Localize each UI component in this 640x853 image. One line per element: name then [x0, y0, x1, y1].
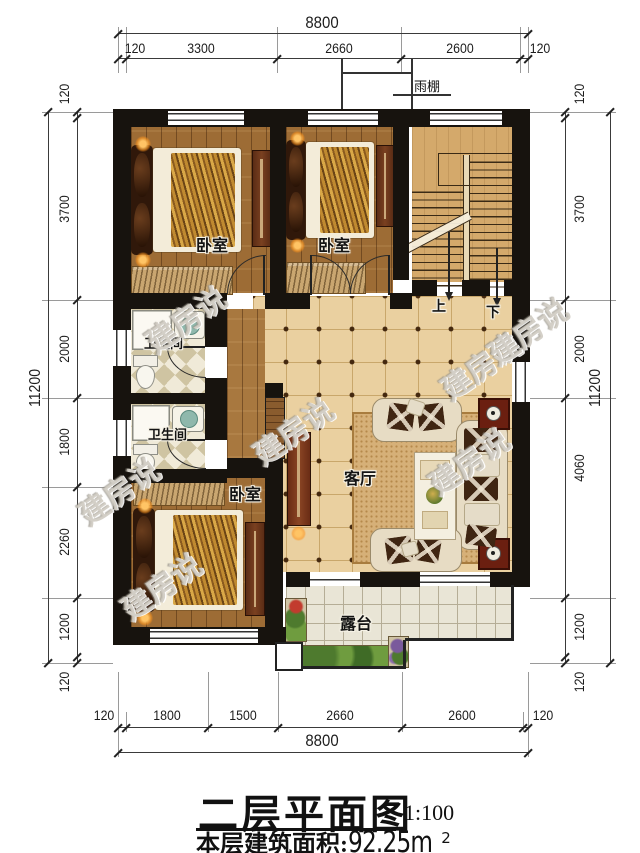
terrace-door-opening	[310, 573, 360, 586]
area-value: 92.25m	[348, 825, 432, 853]
living-label: 客厅	[344, 465, 376, 489]
bedroom1-door-leaf	[263, 255, 265, 295]
bath1-door-opening	[205, 347, 227, 378]
dim-left-seg: 2000	[57, 335, 71, 362]
living-cabinet	[287, 432, 311, 526]
dim-left-seg: 120	[57, 672, 71, 693]
sofa-cushion	[464, 428, 498, 452]
bedroom3-lamp	[137, 610, 153, 626]
bath2-door-opening	[205, 440, 227, 469]
dim-line	[48, 112, 49, 663]
extension-line	[278, 672, 279, 732]
extension-line	[208, 672, 209, 732]
dim-bottom-seg: 120	[533, 708, 554, 722]
dim-bottom-seg: 2660	[326, 708, 353, 722]
terrace-planter-left	[285, 598, 307, 642]
sink-bowl	[181, 316, 200, 335]
table-tray	[420, 460, 450, 480]
bedroom2-bed-headboard	[286, 140, 306, 240]
pillow	[289, 192, 303, 232]
dim-right-total: 11200	[588, 369, 604, 407]
dim-line	[118, 727, 528, 728]
window	[113, 420, 131, 456]
bed-duvet	[320, 147, 369, 233]
bedroom1-lamp	[135, 252, 151, 268]
wall-left	[113, 109, 131, 645]
wall-right	[512, 109, 530, 587]
dim-top-seg: 2600	[446, 41, 473, 55]
extension-line	[523, 712, 524, 732]
bedroom1-lamp	[135, 136, 151, 152]
dim-left-total: 11200	[28, 369, 44, 407]
dim-left-seg: 120	[57, 84, 71, 105]
window	[168, 111, 244, 125]
extension-line	[530, 300, 616, 301]
extension-line	[530, 112, 616, 113]
stairs-up-label: 上	[432, 296, 446, 316]
dim-line	[118, 58, 528, 59]
extension-line	[528, 672, 529, 757]
pillow	[134, 203, 150, 247]
side-table-top	[478, 398, 510, 430]
window	[113, 330, 131, 366]
area-label: 本层建筑面积:	[196, 824, 348, 853]
pillow	[136, 563, 152, 605]
cabinet-handle	[260, 159, 263, 238]
wall-stair-bottom	[504, 280, 530, 296]
dim-bottom-seg: 2600	[448, 708, 475, 722]
wall-bedroom-divider-1	[270, 127, 286, 309]
terrace-label: 露台	[340, 610, 372, 634]
dim-bottom-total: 8800	[305, 732, 338, 749]
terrace-floor-upper	[286, 585, 512, 640]
stair-up-arrow	[448, 232, 450, 292]
bedroom2-lamp	[290, 131, 305, 146]
bedroom1-bed-headboard	[131, 145, 153, 255]
canopy-outline-right	[411, 59, 413, 113]
area-superscript: 2	[441, 829, 451, 847]
table-dot	[491, 411, 495, 415]
pillow	[289, 147, 303, 187]
stairs-down-label: 下	[486, 302, 500, 322]
bedroom3-lamp	[137, 498, 153, 514]
dim-bottom-seg: 120	[94, 708, 115, 722]
bath2-label: 卫生间	[148, 424, 187, 443]
window	[150, 629, 258, 643]
dim-top-seg: 2660	[325, 41, 352, 55]
wall-stair-bottom	[412, 280, 437, 296]
bed-duvet	[173, 515, 237, 605]
wall-mid-horizontal	[265, 293, 310, 309]
bedroom3-cabinet	[245, 522, 265, 616]
bedroom2-bed	[306, 142, 374, 238]
extension-line	[118, 672, 119, 757]
stair-landing-outline	[438, 153, 513, 186]
bedroom2-label: 卧室	[318, 232, 350, 256]
dim-right-seg: 4060	[572, 454, 586, 481]
wall-living-bottom	[490, 572, 512, 587]
bedroom3-label: 卧室	[229, 481, 261, 505]
area-line: 本层建筑面积: 92.25m 2	[196, 824, 463, 853]
wall-bedroom2-stair-divider	[393, 127, 409, 280]
dim-right-seg: 120	[572, 672, 586, 693]
window	[308, 111, 378, 125]
window	[430, 111, 502, 125]
dim-top-seg: 120	[125, 41, 146, 55]
table-plant	[426, 487, 443, 504]
bedroom3-bed	[155, 510, 243, 610]
dim-right-seg: 2000	[572, 335, 586, 362]
wall-bath-divider	[131, 393, 227, 404]
dim-line	[77, 112, 78, 663]
dim-top-total: 8800	[305, 14, 338, 31]
terrace-planter-row	[292, 645, 394, 668]
wall-living-bottom	[286, 572, 310, 587]
terrace-edge-step	[403, 640, 406, 668]
terrace-edge-bottom-left	[286, 666, 406, 669]
bedroom1-wardrobe	[131, 266, 233, 295]
dim-left-seg: 1800	[57, 428, 71, 455]
table-dot	[491, 551, 495, 555]
bedroom2-lamp	[290, 238, 305, 253]
living-lamp	[291, 526, 306, 541]
canopy-label: 雨棚	[414, 76, 440, 95]
sofa-cushion	[464, 454, 500, 477]
table-decor	[422, 511, 448, 529]
wall-stair-bottom	[462, 280, 490, 296]
floor-plan-page: 8800 120 3300 2660 2600 120 雨棚 120 1800 …	[0, 0, 640, 853]
dim-right-seg: 3700	[572, 195, 586, 222]
bedroom2-door-leaf-left	[310, 255, 312, 295]
cabinet-handle	[384, 153, 387, 219]
sofa-cushion	[464, 477, 498, 501]
cabinet-handle	[297, 441, 300, 517]
pillow	[134, 153, 150, 197]
corridor-floor	[227, 309, 265, 458]
bedroom1-label: 卧室	[196, 232, 228, 256]
wall-mid-horizontal	[113, 293, 227, 309]
bedroom2-door-leaf-right	[388, 255, 390, 295]
canopy-outline-top	[341, 72, 412, 74]
dim-left-seg: 1200	[57, 613, 71, 640]
dim-top-seg: 120	[530, 41, 551, 55]
dim-right-seg: 1200	[572, 613, 586, 640]
cabinet-handle	[254, 531, 257, 607]
coffee-table	[414, 452, 456, 540]
bedroom3-bed-headboard	[133, 508, 155, 612]
terrace-edge-bottom-right	[405, 638, 514, 641]
dim-bottom-seg: 1500	[229, 708, 256, 722]
extension-line	[402, 672, 403, 732]
pillow	[136, 516, 152, 558]
extension-line	[530, 663, 616, 664]
extension-line	[530, 598, 616, 599]
dim-line	[118, 752, 528, 753]
bath1-label: 卫生间	[144, 333, 183, 352]
wall-bedroom3-right-stub	[265, 383, 283, 397]
terrace-edge-right	[511, 585, 514, 640]
bedroom1-cabinet	[252, 150, 271, 247]
wall-bedroom3-right	[265, 457, 283, 645]
stair-down-arrow	[496, 248, 498, 298]
terrace-corner-column	[275, 642, 303, 671]
drawing-scale: 1:100	[404, 800, 454, 826]
dim-bottom-seg: 1800	[153, 708, 180, 722]
stair-up-arrowhead	[445, 292, 453, 301]
canopy-outline-left	[341, 59, 343, 113]
extension-line	[126, 712, 127, 732]
window	[420, 573, 490, 586]
bedroom2-cabinet	[376, 145, 394, 227]
dim-right-seg: 120	[572, 84, 586, 105]
wall-mid-horizontal	[390, 293, 412, 309]
sofa-cushion	[465, 524, 497, 548]
dim-left-seg: 2260	[57, 528, 71, 555]
wall-living-bottom	[360, 572, 420, 587]
dim-line	[565, 112, 566, 663]
window	[512, 362, 530, 402]
sofa-cushion	[464, 503, 500, 526]
bedroom3-door-panel	[265, 397, 285, 459]
dim-top-seg: 3300	[187, 41, 214, 55]
wall-bath2-bottom	[113, 469, 227, 483]
dim-left-seg: 3700	[57, 195, 71, 222]
dim-line	[610, 112, 611, 663]
dim-line	[118, 33, 528, 34]
